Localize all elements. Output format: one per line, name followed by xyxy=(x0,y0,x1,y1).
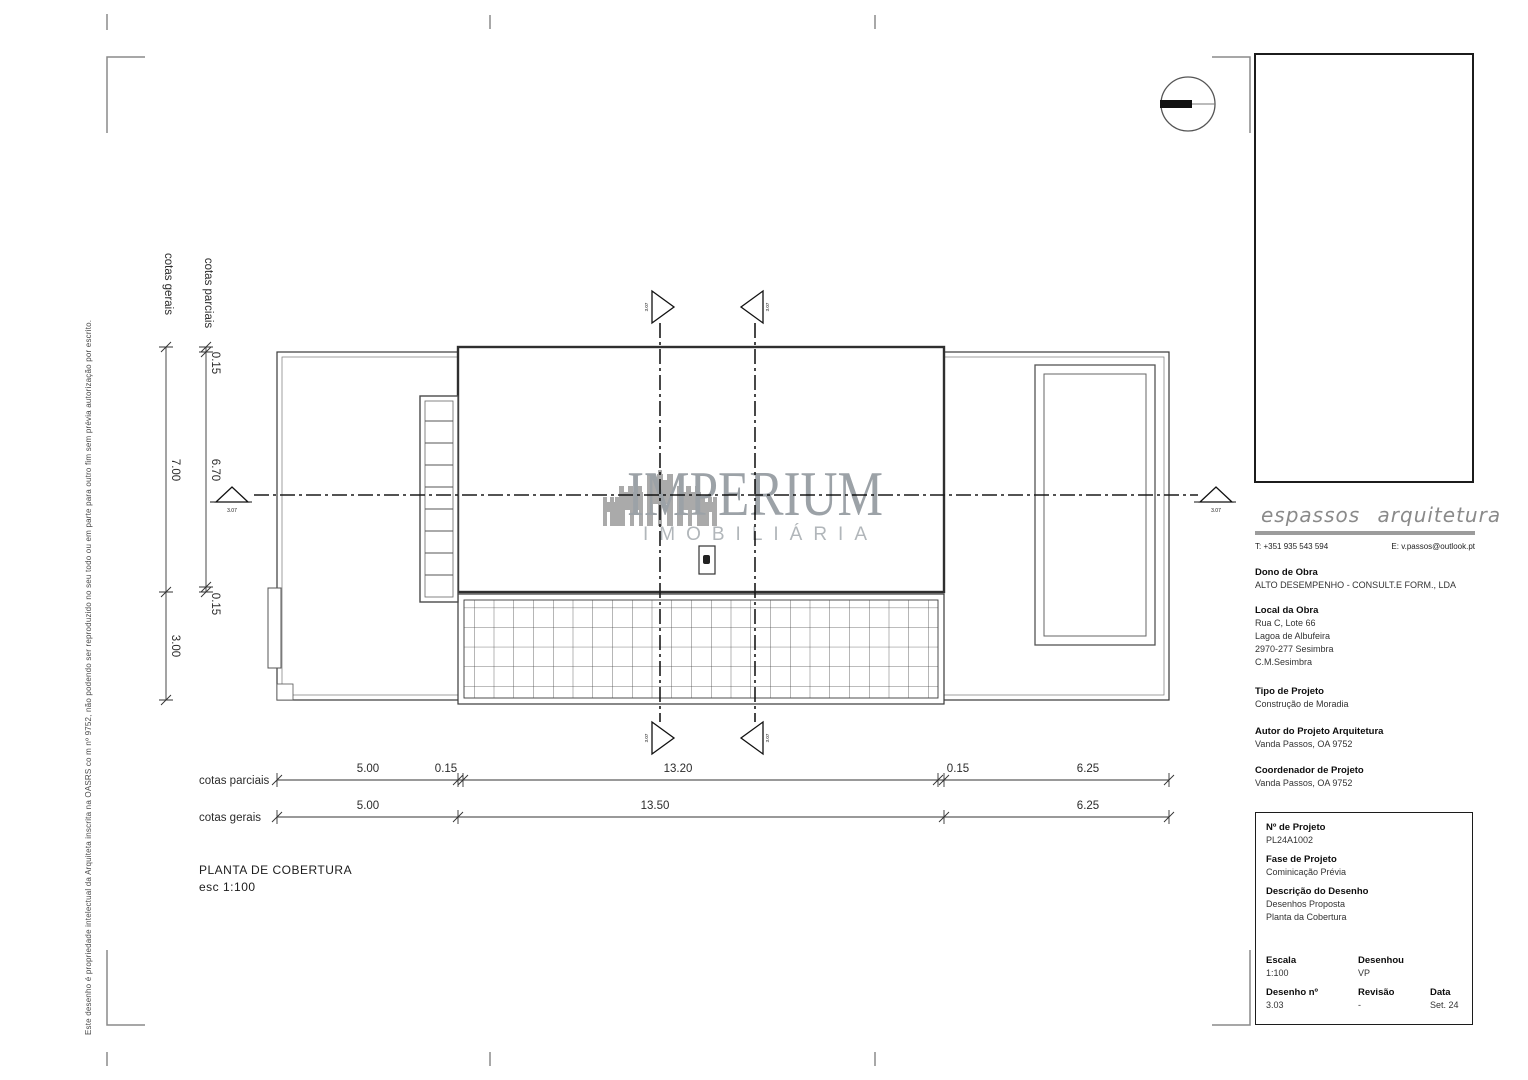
section-marker-label: 3.07 xyxy=(644,302,649,311)
bottom-gerais-label: cotas gerais xyxy=(199,812,261,824)
section-marker-label: 3.07 xyxy=(227,508,237,514)
section-marker-bottom-2 xyxy=(741,722,763,754)
section-marker-label: 3.07 xyxy=(765,733,770,742)
title-block-info-box: Nº de Projeto PL24A1002 Fase de Projeto … xyxy=(1255,812,1473,1025)
pergola-grid xyxy=(458,594,944,704)
project-no-label: Nº de Projeto xyxy=(1266,821,1462,834)
corner-mark-top-right xyxy=(1212,57,1250,133)
section-marker-label: 3.07 xyxy=(644,733,649,742)
corner-mark-bottom-left xyxy=(107,950,145,1025)
roof-hatch xyxy=(699,546,715,574)
dim-value: 0.15 xyxy=(435,763,457,775)
north-indicator-icon xyxy=(1160,77,1215,131)
dim-value: 13.20 xyxy=(664,763,693,775)
section-marker-top-1 xyxy=(652,291,674,323)
revision-label: Revisão xyxy=(1358,986,1430,999)
section-marker-bottom-1 xyxy=(652,722,674,754)
scale-label: Escala xyxy=(1266,954,1358,967)
coordinator-value: Vanda Passos, OA 9752 xyxy=(1255,777,1475,790)
coordinator-label: Coordenador de Projeto xyxy=(1255,764,1475,777)
drawing-sheet: 3.07 3.07 3.07 3.07 3.07 3.07 cotas gera… xyxy=(0,0,1528,1080)
location-label: Local da Obra xyxy=(1255,604,1475,617)
dim-value: 5.00 xyxy=(357,763,379,775)
watermark-name: IMPERIUM xyxy=(627,462,883,526)
dim-value: 13.50 xyxy=(641,800,670,812)
watermark: IMPERIUM IMOBILIÁRIA xyxy=(595,470,915,546)
section-marker-right xyxy=(1200,487,1232,502)
author-value: Vanda Passos, OA 9752 xyxy=(1255,738,1475,751)
plan-title: PLANTA DE COBERTURA xyxy=(199,863,352,877)
description-label: Descrição do Desenho xyxy=(1266,885,1462,898)
dim-value: 6.70 xyxy=(209,459,221,481)
logo-underline-bar xyxy=(1255,531,1475,535)
pool xyxy=(1035,365,1155,645)
dim-value: 7.00 xyxy=(169,459,181,481)
description-line: Planta da Cobertura xyxy=(1266,911,1462,924)
dim-value: 3.00 xyxy=(169,635,181,657)
stairs xyxy=(420,396,458,602)
corner-mark-bottom-right xyxy=(1212,950,1250,1025)
dim-value: 0.15 xyxy=(947,763,969,775)
project-type-label: Tipo de Projeto xyxy=(1255,685,1475,698)
section-marker-label: 3.07 xyxy=(1211,508,1221,514)
detail-box xyxy=(1255,54,1473,482)
project-no-value: PL24A1002 xyxy=(1266,834,1462,847)
project-type-value: Construção de Moradia xyxy=(1255,698,1475,711)
left-gate-detail xyxy=(268,588,281,668)
dim-value: 6.25 xyxy=(1077,800,1099,812)
drawn-value: VP xyxy=(1358,967,1430,980)
dim-value: 0.15 xyxy=(209,352,221,374)
firm-logo: espassos arquitetura xyxy=(1261,503,1475,527)
corner-mark-top-left xyxy=(107,57,145,133)
drawing-caption: PLANTA DE COBERTURA esc 1:100 xyxy=(199,863,352,894)
title-block: espassos arquitetura T: +351 935 543 594… xyxy=(1255,497,1475,790)
location-line: C.M.Sesimbra xyxy=(1255,656,1475,669)
date-value: Set. 24 xyxy=(1430,999,1462,1012)
drawing-no-label: Desenho nº xyxy=(1266,986,1358,999)
dim-value: 0.15 xyxy=(209,593,221,615)
section-marker-label: 3.07 xyxy=(765,302,770,311)
phase-value: Cominicação Prévia xyxy=(1266,866,1462,879)
location-line: Lagoa de Albufeira xyxy=(1255,630,1475,643)
drawn-label: Desenhou xyxy=(1358,954,1430,967)
left-parciais-label: cotas parciais xyxy=(202,258,214,329)
drawing-no-value: 3.03 xyxy=(1266,999,1358,1012)
scale-value: 1:100 xyxy=(1266,967,1358,980)
owner-value: ALTO DESEMPENHO - CONSULT.E FORM., LDA xyxy=(1255,579,1475,592)
date-label: Data xyxy=(1430,986,1462,999)
description-line: Desenhos Proposta xyxy=(1266,898,1462,911)
revision-value: - xyxy=(1358,999,1430,1012)
plan-scale-note: esc 1:100 xyxy=(199,880,256,894)
owner-label: Dono de Obra xyxy=(1255,566,1475,579)
location-line: Rua C, Lote 66 xyxy=(1255,617,1475,630)
dim-value: 5.00 xyxy=(357,800,379,812)
phase-label: Fase de Projeto xyxy=(1266,853,1462,866)
section-marker-left xyxy=(216,487,248,502)
author-label: Autor do Projeto Arquitetura xyxy=(1255,725,1475,738)
dim-value: 6.25 xyxy=(1077,763,1099,775)
firm-phone: T: +351 935 543 594 xyxy=(1255,542,1328,551)
firm-email: E: v.passos@outlook.pt xyxy=(1391,542,1475,551)
bottom-parciais-label: cotas parciais xyxy=(199,775,270,787)
left-gerais-label: cotas gerais xyxy=(162,253,174,315)
section-marker-top-2 xyxy=(741,291,763,323)
copyright-note: Este desenho é propriedade intelectual d… xyxy=(84,320,93,1035)
location-line: 2970-277 Sesimbra xyxy=(1255,643,1475,656)
corner-detail xyxy=(277,684,293,700)
